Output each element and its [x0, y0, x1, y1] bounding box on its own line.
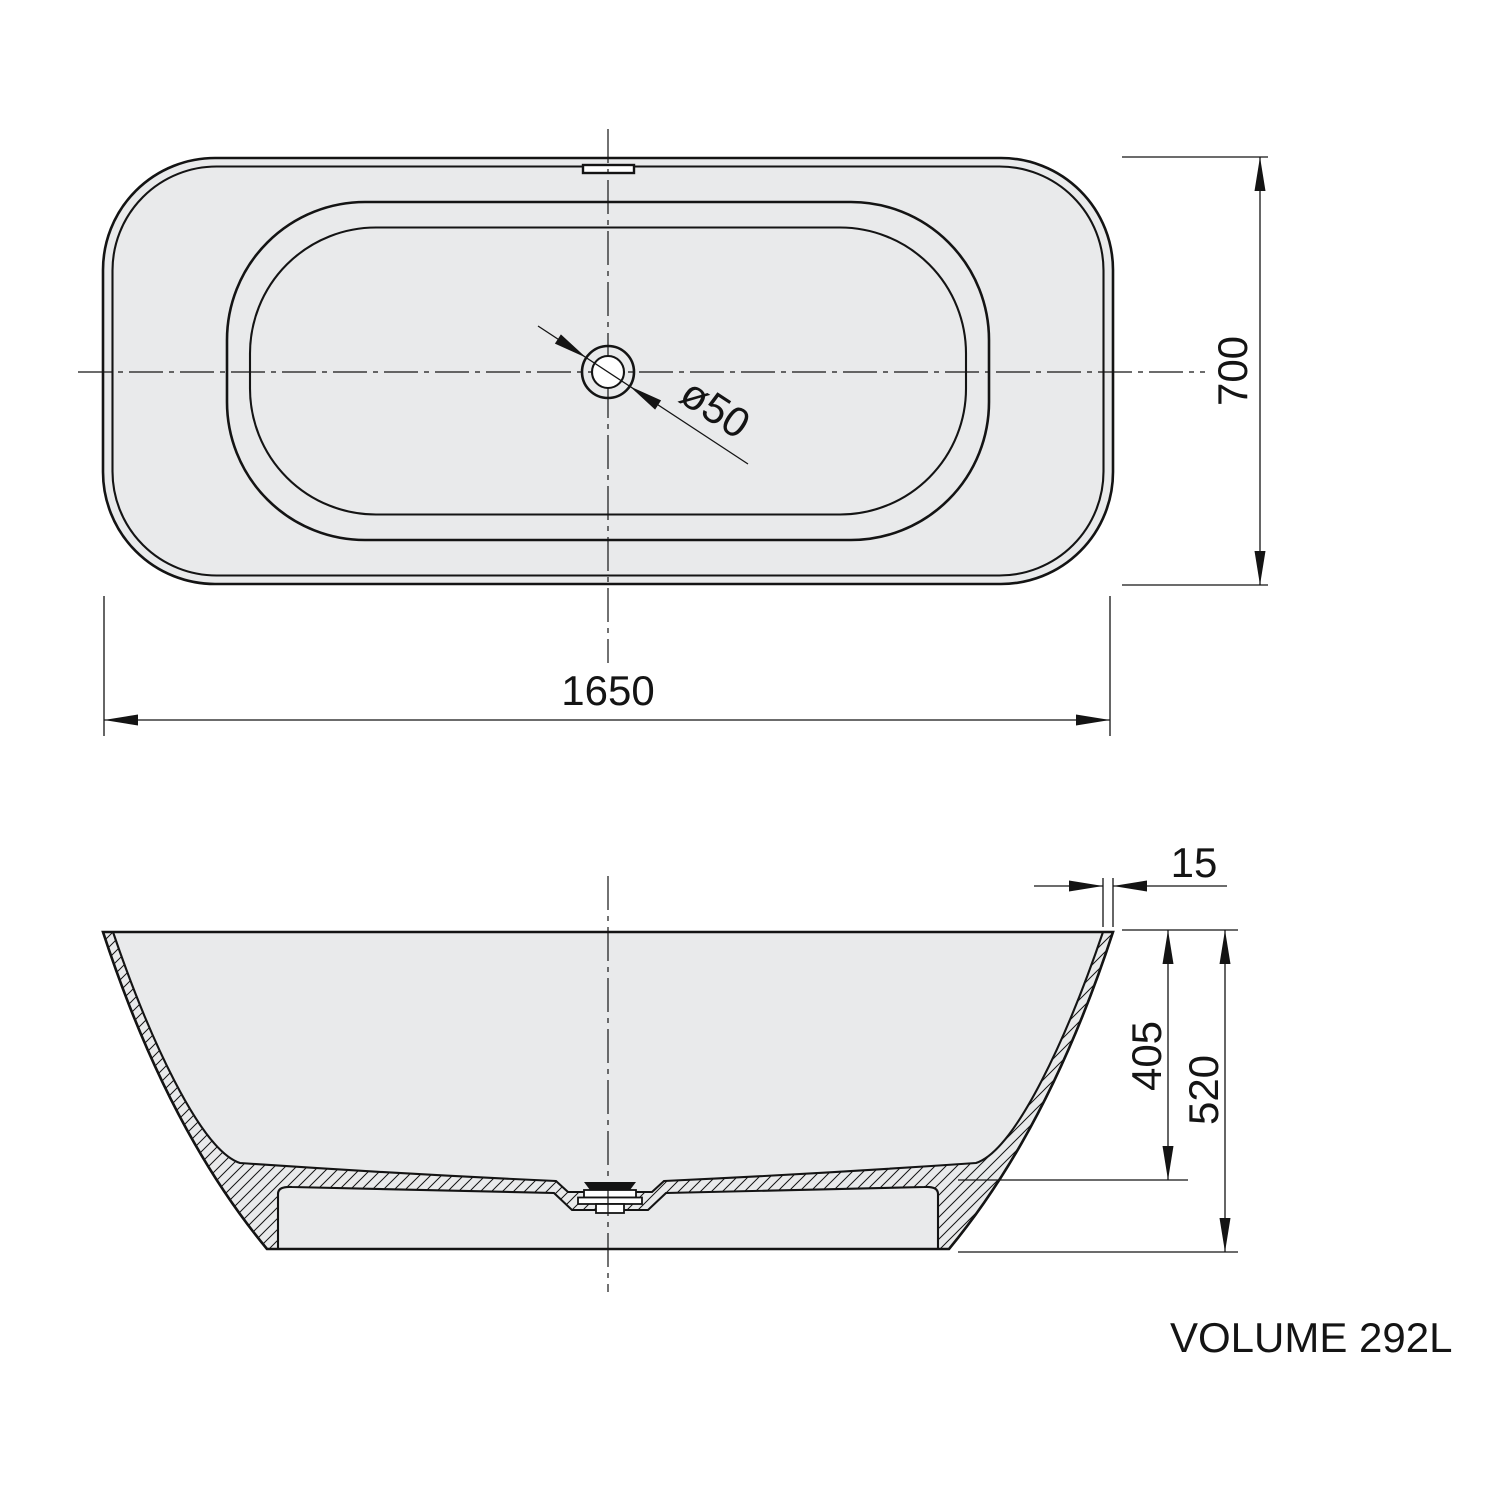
- drawing-canvas: ø50 700 1650 15: [0, 0, 1500, 1500]
- length-dim-arrow-left: [104, 715, 138, 726]
- height-dim-label: 520: [1180, 1055, 1227, 1125]
- length-dim-label: 1650: [561, 667, 654, 714]
- drain-fitting-tailpiece: [596, 1204, 624, 1213]
- thickness-dim-arrow-left: [1069, 881, 1103, 892]
- section-view: 15 405 520: [103, 839, 1238, 1292]
- volume-label: VOLUME 292L: [1170, 1314, 1452, 1361]
- bathtub-technical-drawing: ø50 700 1650 15: [0, 0, 1500, 1500]
- length-dim-arrow-right: [1076, 715, 1110, 726]
- drain-fitting-seal: [584, 1182, 636, 1190]
- depth-dim-label: 405: [1123, 1021, 1170, 1091]
- thickness-dim-arrow-right: [1113, 881, 1147, 892]
- height-dim-arrow-top: [1220, 930, 1231, 964]
- depth-dim-arrow-top: [1163, 930, 1174, 964]
- drain-fitting-body: [584, 1190, 636, 1198]
- top-view: ø50 700 1650: [78, 129, 1268, 736]
- width-dim-arrow-bottom: [1255, 551, 1266, 585]
- height-dim-arrow-bottom: [1220, 1218, 1231, 1252]
- drain-fitting-flange: [578, 1198, 642, 1205]
- width-dim-arrow-top: [1255, 157, 1266, 191]
- width-dim-label: 700: [1209, 336, 1256, 406]
- thickness-dim-label: 15: [1171, 839, 1218, 886]
- depth-dim-arrow-bottom: [1163, 1146, 1174, 1180]
